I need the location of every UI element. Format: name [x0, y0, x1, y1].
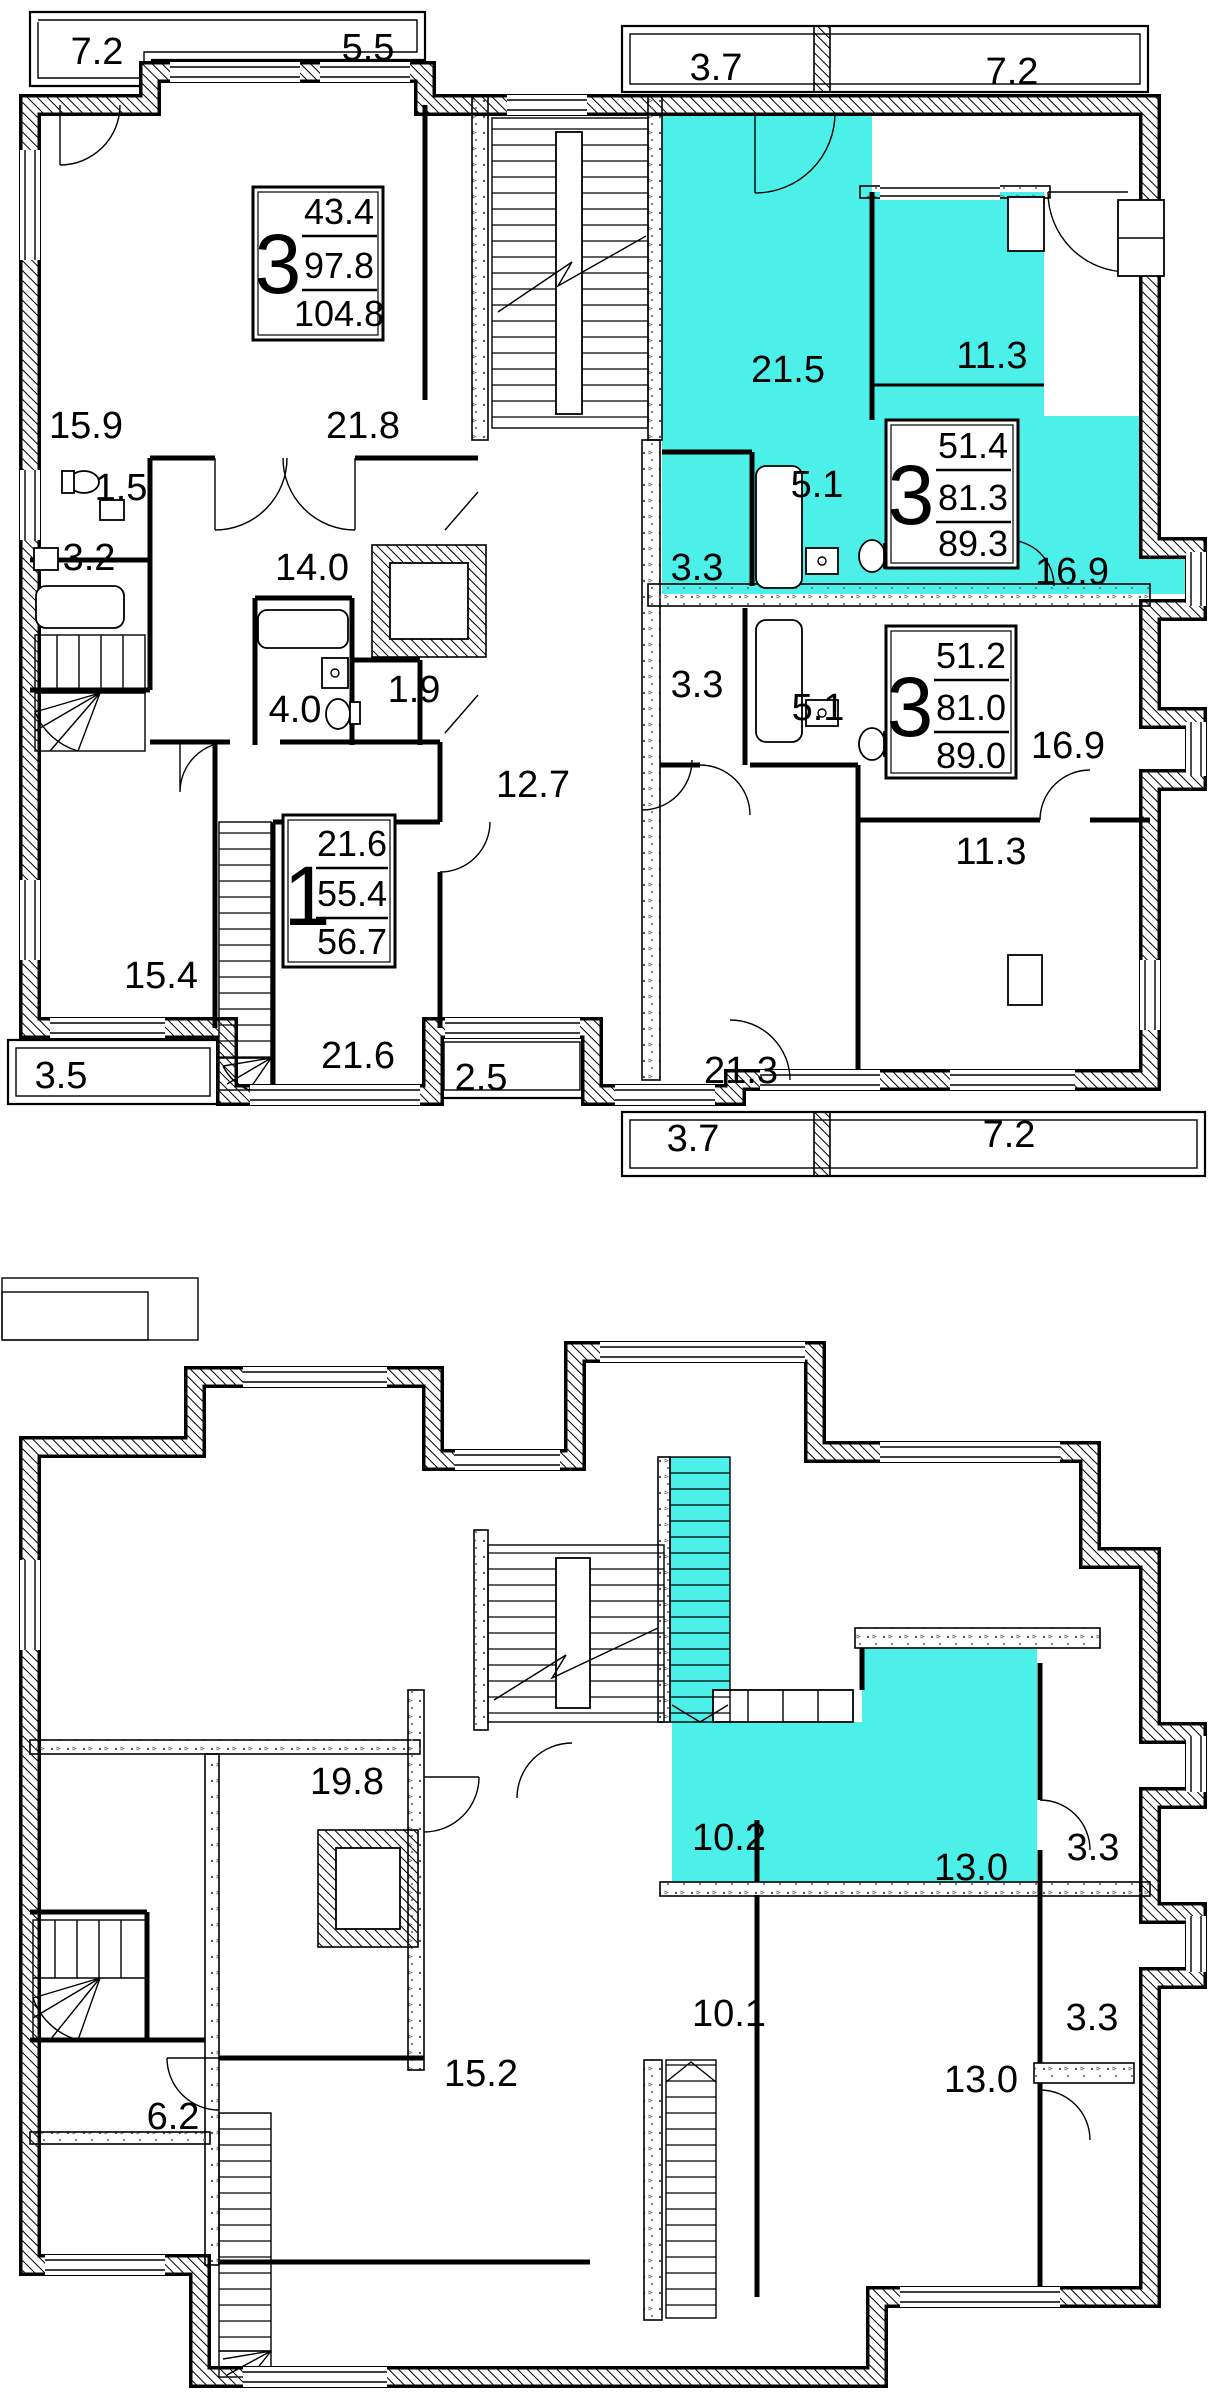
area-label-11-3b: 11.3 — [955, 831, 1026, 873]
apartment-info-box-2: 3 51.4 81.3 89.3 — [886, 420, 1018, 568]
spiral-staircase-lower — [33, 1920, 147, 2040]
floor-plan-drawing: 3 43.4 97.8 104.8 3 51.4 81.3 89.3 3 51.… — [0, 0, 1220, 2405]
area-label-balcony-7-2b: 7.2 — [986, 51, 1039, 93]
apartment-total-area: 104.8 — [294, 293, 384, 334]
main-staircase-upper — [492, 118, 648, 428]
apartment-total-area: 89.0 — [936, 735, 1006, 776]
entrance-canopy — [2, 1278, 198, 1340]
area-label-balcony-7-2: 7.2 — [71, 31, 124, 73]
area-label-3-3: 3.3 — [671, 664, 724, 706]
apartment-usable-area: 81.3 — [938, 477, 1008, 518]
apartment-total-area: 56.7 — [317, 921, 387, 962]
area-label-21-6: 21.6 — [321, 1035, 395, 1077]
apartment-total-area: 89.3 — [938, 523, 1008, 564]
apartment-living-area: 21.6 — [317, 823, 387, 864]
area-label-13-0-hl: 13.0 — [934, 1847, 1008, 1889]
area-label-6-2: 6.2 — [147, 2096, 200, 2138]
apartment-info-box-1: 3 43.4 97.8 104.8 — [253, 187, 384, 340]
apartment-staircase-upper — [219, 822, 271, 1090]
area-label-13-0: 13.0 — [944, 2059, 1018, 2101]
main-staircase-lower — [488, 1545, 664, 1722]
apartment-living-area: 43.4 — [304, 191, 374, 232]
area-label-15-9: 15.9 — [49, 405, 123, 447]
area-label-5-1: 5.1 — [792, 687, 845, 729]
upper-floor-plan: 3 43.4 97.8 104.8 3 51.4 81.3 89.3 3 51.… — [8, 12, 1206, 1176]
area-label-3-3-bottom: 3.3 — [1066, 1997, 1119, 2039]
area-label-hl-3-3: 3.3 — [671, 547, 724, 589]
area-label-19-8: 19.8 — [310, 1761, 384, 1803]
floor-plan-page: 3 43.4 97.8 104.8 3 51.4 81.3 89.3 3 51.… — [0, 0, 1220, 2405]
apartment-usable-area: 55.4 — [317, 873, 387, 914]
apartment-rooms-count: 3 — [887, 660, 934, 754]
area-label-balcony-3-7b: 3.7 — [667, 1118, 720, 1160]
area-label-15-4: 15.4 — [124, 955, 198, 997]
area-label-balcony-5-5: 5.5 — [342, 27, 395, 69]
area-label-15-2: 15.2 — [444, 2053, 518, 2095]
lower-floor-plan: 19.8 10.2 13.0 3.3 10.1 3.3 13.0 6.2 15.… — [2, 1278, 1220, 2387]
area-label-14-0: 14.0 — [275, 547, 349, 589]
area-label-1-5: 1.5 — [95, 467, 148, 509]
apartment-rooms-count: 3 — [888, 448, 935, 542]
elevator-shaft-upper — [372, 545, 486, 657]
area-label-4-0: 4.0 — [269, 689, 322, 731]
duplex-staircase-white — [666, 2060, 716, 2318]
apartment-usable-area: 97.8 — [304, 245, 374, 286]
area-label-21-3: 21.3 — [704, 1050, 778, 1092]
elevator-shaft-lower — [318, 1830, 418, 1947]
area-label-1-9: 1.9 — [388, 669, 441, 711]
area-label-11-3: 11.3 — [956, 335, 1027, 377]
apartment-staircase-lower — [219, 2113, 271, 2379]
duplex-staircase-highlighted — [670, 1457, 730, 1722]
area-label-balcony-3-7: 3.7 — [690, 47, 743, 89]
apartment-info-box-4: 1 21.6 55.4 56.7 — [283, 815, 395, 967]
apartment-info-box-3: 3 51.2 81.0 89.0 — [886, 626, 1016, 778]
area-label-16-9: 16.9 — [1031, 725, 1105, 767]
spiral-staircase-upper — [35, 635, 145, 751]
area-label-10-2: 10.2 — [692, 1817, 766, 1859]
area-label-12-7: 12.7 — [496, 764, 570, 806]
apartment-living-area: 51.2 — [936, 635, 1006, 676]
area-label-balcony-3-5: 3.5 — [35, 1055, 88, 1097]
apartment-living-area: 51.4 — [938, 425, 1008, 466]
area-label-21-5: 21.5 — [751, 349, 825, 391]
area-label-hl-16-9: 16.9 — [1035, 551, 1109, 593]
area-label-21-8: 21.8 — [326, 405, 400, 447]
area-label-balcony-7-2c: 7.2 — [983, 1114, 1036, 1156]
area-label-hl-5-1: 5.1 — [791, 464, 844, 506]
area-label-3-3-top: 3.3 — [1067, 1827, 1120, 1869]
area-label-balcony-2-5: 2.5 — [455, 1057, 508, 1099]
area-label-10-1: 10.1 — [692, 1993, 766, 2035]
area-label-3-2: 3.2 — [63, 537, 116, 579]
wardrobe — [713, 1690, 853, 1722]
apartment-usable-area: 81.0 — [936, 687, 1006, 728]
